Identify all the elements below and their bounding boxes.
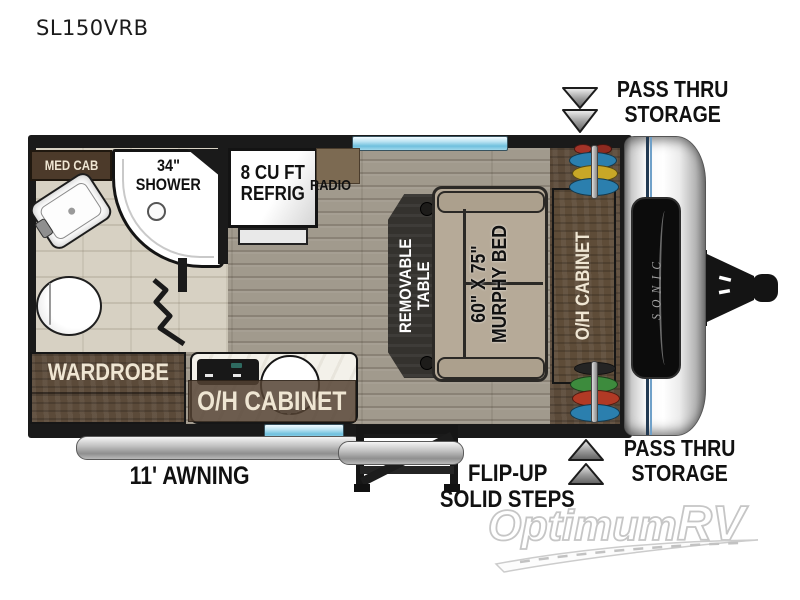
overhead-cabinet-kitchen: O/H CABINET	[188, 380, 356, 422]
pass-thru-bottom-label: PASS THRU STORAGE	[604, 436, 756, 486]
watermark-road-swoosh	[490, 532, 765, 576]
floorplan-page: SL150VRB PASS THRU STORAGE O/H CABINET	[0, 0, 800, 600]
refrigerator: 8 CU FT REFRIG	[228, 148, 318, 228]
bathroom-door	[146, 274, 190, 350]
awning-tube	[76, 436, 364, 460]
radio-label: RADIO	[310, 177, 380, 194]
medicine-cabinet: MED CAB	[30, 150, 112, 181]
overhead-cabinet-front: O/H CABINET	[552, 188, 616, 384]
sonic-logo: SONIC	[649, 256, 663, 320]
pass-thru-up-arrows-icon	[566, 437, 606, 487]
wardrobe: WARDROBE	[30, 352, 186, 424]
front-cap: SONIC	[624, 136, 706, 436]
bathroom-wall	[218, 148, 228, 264]
murphy-bed: 60" X 75" MURPHY BED	[432, 186, 548, 382]
top-window	[352, 136, 508, 151]
page-title: SL150VRB	[36, 16, 148, 40]
awning-label: 11' AWNING	[105, 462, 275, 491]
shower-drain-icon	[147, 202, 166, 221]
bed-arm-top	[437, 191, 545, 213]
bed-arm-bottom	[437, 357, 545, 379]
toilet	[36, 276, 102, 336]
pass-thru-top-label: PASS THRU STORAGE	[598, 77, 748, 127]
refrigerator-ledge	[238, 228, 308, 245]
front-window: SONIC	[631, 197, 681, 379]
trailer-hitch	[694, 246, 786, 330]
stored-camp-chairs-bottom	[566, 360, 620, 424]
stored-camp-chairs-top	[566, 143, 620, 199]
pass-thru-down-arrows-icon	[560, 85, 600, 135]
